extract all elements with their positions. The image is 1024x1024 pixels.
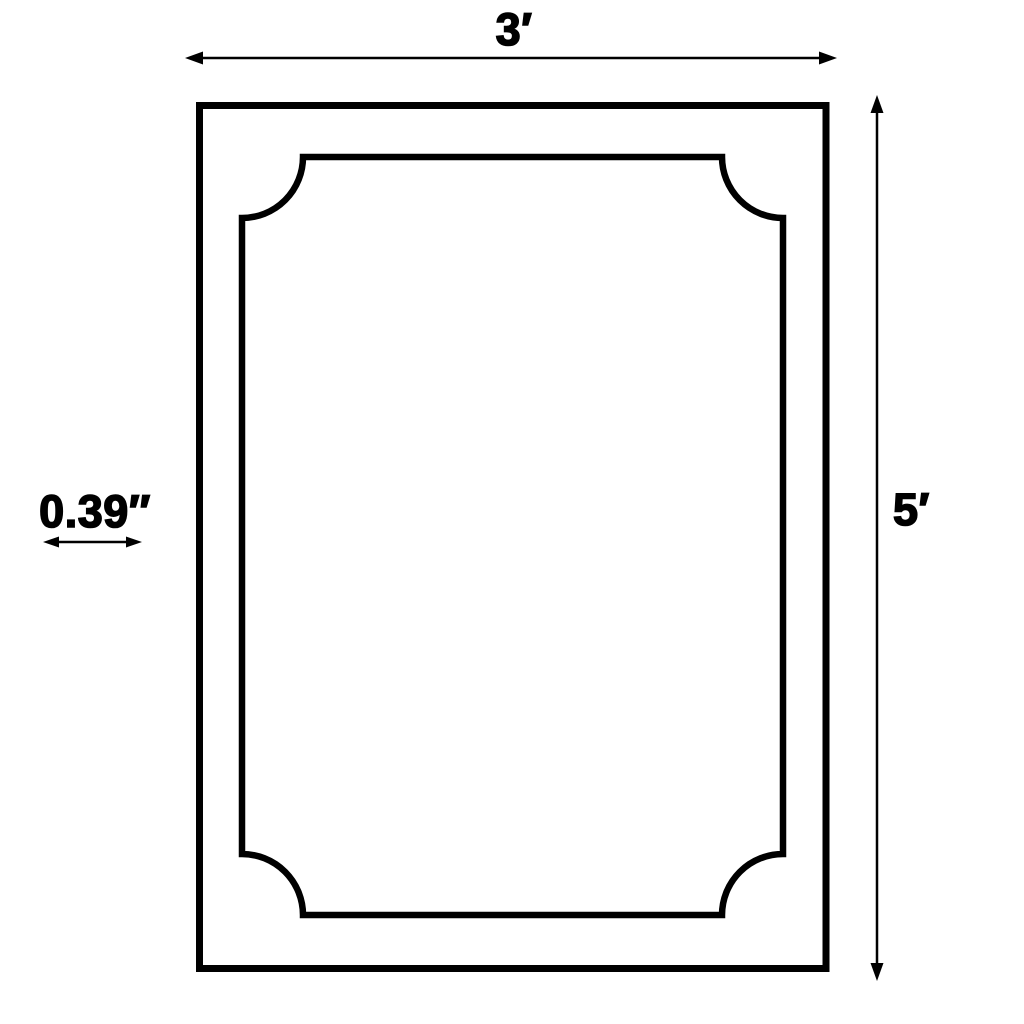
height-dimension-label: 5′ bbox=[893, 484, 930, 535]
thickness-dimension-label: 0.39″ bbox=[39, 486, 151, 537]
width-dimension-label: 3′ bbox=[496, 4, 533, 55]
dimension-diagram: 3′ 5′ 0.39″ bbox=[0, 0, 1024, 1024]
dimension-diagram-canvas: 3′ 5′ 0.39″ bbox=[0, 0, 1024, 1024]
diagram-background bbox=[0, 0, 1024, 1024]
